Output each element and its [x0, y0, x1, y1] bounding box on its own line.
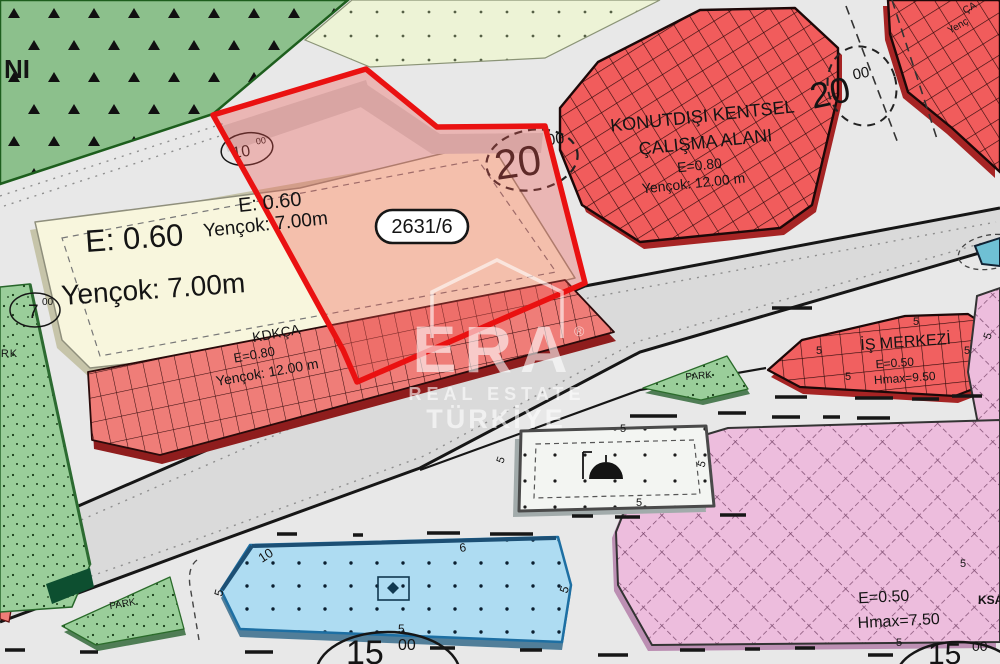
road-width-sup: 00: [972, 638, 988, 654]
road-width-value: 15: [346, 634, 384, 664]
road-width-sup: 00: [398, 637, 416, 654]
setback-5: 5: [896, 637, 902, 649]
purple-far: E=0.50: [858, 588, 910, 608]
road-width-value: 20: [806, 68, 854, 116]
road-width-value: 15: [928, 638, 961, 664]
watermark-line1: REAL ESTATE: [408, 384, 585, 404]
setback-5: 5: [960, 558, 966, 570]
forest-partial-label: NI: [4, 54, 30, 84]
setback-5: 5: [816, 345, 822, 357]
watermark-line2: TÜRKİYE: [426, 404, 566, 434]
neighbor-zone-label: KSA: [978, 593, 1000, 607]
cream-far-label: E: 0.60: [84, 217, 184, 259]
setback-5: 5: [620, 423, 626, 435]
setback-5: 5: [636, 497, 642, 509]
road-width-value: 7: [28, 302, 39, 323]
road-width-sup: 00: [42, 297, 54, 308]
parcel-number-badge[interactable]: 2631/6: [376, 210, 468, 243]
road-width-sup: 00: [851, 64, 871, 84]
zoning-map-screenshot: NI KONUTDIŞI KENTSEL ÇALIŞMA ALANI E=0.8…: [0, 0, 1000, 664]
watermark-brand: ERA: [412, 312, 575, 386]
park-label: PARK: [0, 348, 18, 360]
zone-facility-plot: 5 5 5 5: [495, 423, 714, 517]
parcel-number-label: 2631/6: [391, 216, 452, 238]
setback-5: 5: [913, 316, 919, 328]
is-merkezi-far: E=0.50: [875, 355, 915, 372]
registered-mark: ®: [574, 323, 585, 339]
setback-5: 5: [845, 371, 851, 383]
park-label: PARK: [685, 370, 713, 383]
zoning-map[interactable]: NI KONUTDIŞI KENTSEL ÇALIŞMA ALANI E=0.8…: [0, 0, 1000, 664]
